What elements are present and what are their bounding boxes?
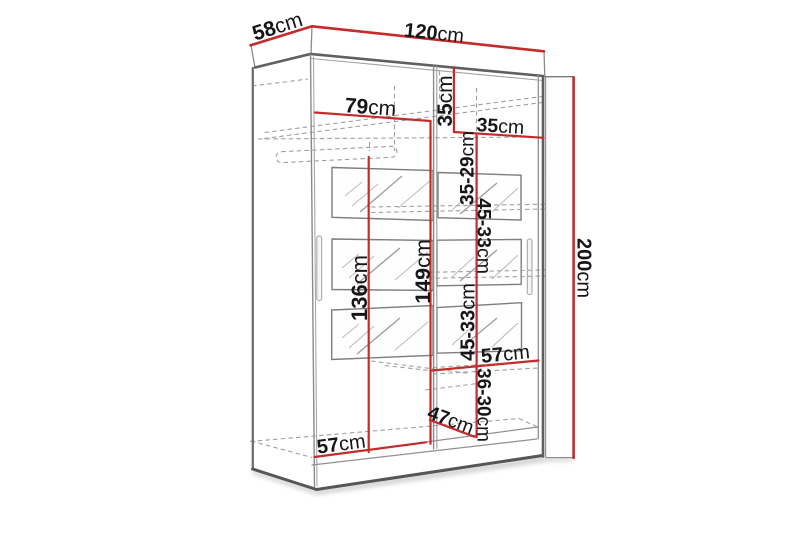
svg-text:45-33cm: 45-33cm <box>458 283 480 361</box>
svg-text:45-33cm: 45-33cm <box>473 198 495 274</box>
svg-text:35cm: 35cm <box>434 75 457 126</box>
svg-text:136cm: 136cm <box>347 255 372 321</box>
svg-text:35-29cm: 35-29cm <box>458 131 479 205</box>
svg-text:35cm: 35cm <box>476 114 525 139</box>
svg-text:200cm: 200cm <box>572 238 594 298</box>
svg-text:57cm: 57cm <box>480 341 531 368</box>
svg-text:149cm: 149cm <box>411 239 435 304</box>
svg-text:36-30cm: 36-30cm <box>472 368 493 442</box>
svg-text:79cm: 79cm <box>344 94 397 121</box>
